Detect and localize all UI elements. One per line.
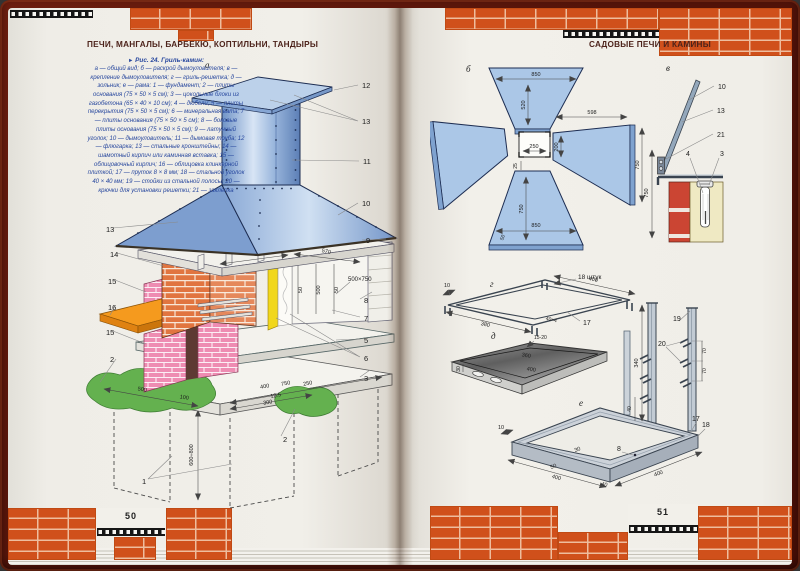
brick-decor — [445, 8, 659, 30]
dim-v-750: 750 — [644, 188, 650, 197]
dim-b-750-right: 750 — [635, 160, 641, 169]
dim-niche-500: 500 — [316, 285, 322, 294]
callout-e-18: 18 — [702, 422, 710, 429]
diagram-d-ash-pan: 15-20 30 360 400 д — [452, 331, 607, 394]
callout-e-8: 8 — [617, 446, 621, 453]
callout-3: 3 — [364, 374, 368, 383]
figure-legend-text: а — общий вид; б — раскрой дымоуловителя… — [86, 65, 246, 195]
diagram-g-label: г — [490, 279, 494, 289]
diagram-b-label: б — [466, 64, 471, 74]
dim-e-70a: 70 — [702, 348, 708, 354]
callout-g-17: 17 — [583, 320, 591, 327]
callout-13-left: 13 — [106, 225, 114, 234]
callout-9: 9 — [366, 236, 370, 245]
running-head-right: САДОВЫЕ ПЕЧИ И КАМИНЫ — [589, 40, 711, 49]
dim-niche-50b: 50 — [334, 287, 340, 293]
dim-e-70b: 70 — [702, 368, 708, 374]
page-number-text: 50 — [125, 511, 137, 521]
dim-d-30: 30 — [456, 366, 462, 372]
diagram-e-label: е — [579, 398, 583, 408]
rivet-hole — [634, 454, 637, 457]
checker-strip — [629, 525, 698, 533]
checker-strip — [10, 10, 93, 18]
dim-b-750-bottom: 750 — [519, 204, 525, 213]
callout-v-10: 10 — [718, 84, 726, 91]
callout-1: 1 — [142, 477, 146, 486]
dim-b-850-bottom: 850 — [531, 223, 540, 229]
callout-15a: 15 — [108, 277, 116, 286]
rivet — [659, 160, 663, 164]
dim-g-400: 400 — [588, 276, 598, 284]
dim-e-10: 10 — [498, 425, 504, 431]
dim-foundation-depth: 600÷800 — [189, 444, 195, 465]
callout-e-19: 19 — [673, 316, 681, 323]
brick-decor — [114, 537, 156, 560]
callout-e-20: 20 — [658, 341, 666, 348]
callout-e-17: 17 — [692, 416, 700, 423]
checker-strip — [563, 30, 659, 38]
bracket-rod — [661, 80, 700, 172]
diagram-e-frame: 340 40 70 70 10 30 50 400 40 400 19 20 1… — [498, 303, 710, 489]
brick-decor — [166, 508, 232, 560]
dim-b-850-top: 850 — [531, 72, 540, 78]
callout-2-right: 2 — [283, 435, 287, 444]
dim-b-520: 520 — [521, 100, 527, 109]
book-spread: 50 51 ПЕЧИ, МАНГАЛЫ, БАРБЕКЮ, КОПТИЛЬНИ,… — [0, 0, 800, 571]
stand-post — [648, 303, 656, 423]
figure-caption: ► Рис. 24. Гриль-камин: — [86, 57, 246, 64]
callout-7: 7 — [364, 314, 368, 323]
brick-decor — [130, 8, 252, 30]
callout-2-left: 2 — [110, 355, 114, 364]
callout-8: 8 — [364, 296, 368, 305]
dim-d-lip: 15-20 — [534, 335, 547, 341]
callout-v-4: 4 — [686, 151, 690, 158]
dim-e-340: 340 — [634, 358, 640, 367]
rivet — [659, 167, 663, 171]
dim-b-250: 250 — [529, 144, 538, 150]
callout-v-13: 13 — [717, 108, 725, 115]
figure-caption-text: Рис. 24. Гриль-камин: — [135, 57, 204, 64]
callout-5: 5 — [364, 336, 368, 345]
callout-11: 11 — [363, 157, 371, 166]
brick-decor — [698, 506, 792, 560]
brick-decor — [430, 506, 558, 560]
callout-16: 16 — [108, 303, 116, 312]
dim-b-200: 200 — [554, 142, 560, 151]
brick-decor — [558, 532, 628, 560]
dim-g-380: 380 — [480, 321, 490, 329]
diagram-d-label: д — [491, 331, 496, 341]
diagram-v-label: в — [666, 63, 670, 73]
callout-12: 12 — [362, 81, 370, 90]
diagram-v-mounting-detail: 750 10 13 21 4 3 в — [644, 63, 726, 242]
triangle-bullet-icon: ► — [128, 58, 133, 64]
callout-14: 14 — [110, 250, 118, 259]
callout-15b: 15 — [106, 328, 114, 337]
dim-niche-50a: 50 — [298, 287, 304, 293]
callout-6: 6 — [364, 354, 368, 363]
dim-e-40: 40 — [627, 406, 633, 412]
dim-b-598: 598 — [587, 110, 596, 116]
callout-10: 10 — [362, 199, 370, 208]
dim-g-10: 10 — [444, 283, 450, 289]
callout-v-3: 3 — [720, 151, 724, 158]
brick-decor — [8, 508, 96, 560]
dim-b-25: 25 — [513, 163, 519, 169]
diagram-g-grill-grate: 18 штук 10 400 380 40×4 17 г — [443, 274, 635, 336]
diagrams-b-v-g-d-e: 850 520 250 598 200 750 25 750 850 50 б … — [430, 55, 795, 510]
callout-13-right: 13 — [362, 117, 370, 126]
dim-g-40x4: 40×4 — [545, 316, 558, 324]
checker-strip — [97, 528, 165, 536]
diagram-b-hood-pattern: 850 520 250 598 200 750 25 750 850 50 б — [430, 64, 642, 250]
dim-e-400-right: 400 — [653, 470, 664, 479]
dim-e-40-mid: 40 — [601, 481, 608, 488]
callout-v-21: 21 — [717, 132, 725, 139]
stand-post — [688, 308, 696, 431]
dim-e-400-left: 400 — [551, 474, 561, 482]
figure-legend: ► Рис. 24. Гриль-камин: а — общий вид; б… — [86, 57, 246, 195]
running-head-left: ПЕЧИ, МАНГАЛЫ, БАРБЕКЮ, КОПТИЛЬНИ, ТАНДЫ… — [87, 40, 318, 49]
dim-note-500x750: 500×750 — [348, 277, 372, 283]
